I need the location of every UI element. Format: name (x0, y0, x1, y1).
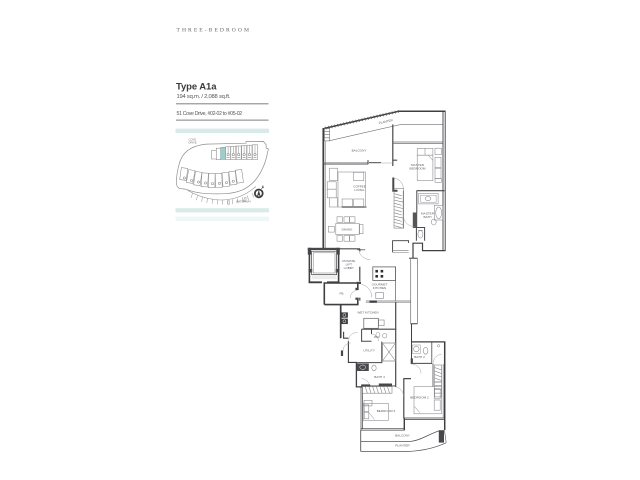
svg-text:PLANTER: PLANTER (395, 443, 410, 447)
svg-text:WET KITCHEN: WET KITCHEN (357, 311, 378, 315)
svg-text:194 sq.m. / 2,088 sq.ft.: 194 sq.m. / 2,088 sq.ft. (177, 94, 231, 100)
svg-text:UTILITY: UTILITY (363, 348, 375, 352)
svg-text:DINING: DINING (342, 227, 353, 231)
svg-text:BATH: BATH (423, 215, 431, 219)
svg-text:LOBBY: LOBBY (344, 266, 354, 270)
svg-text:BEDROOM 3: BEDROOM 3 (377, 409, 396, 413)
svg-text:DRIVE: DRIVE (189, 141, 197, 145)
svg-text:Type A1a: Type A1a (176, 82, 217, 93)
svg-text:BEDROOM 2: BEDROOM 2 (410, 395, 429, 399)
svg-text:WATERWAY: WATERWAY (236, 200, 251, 204)
svg-text:BALCONY: BALCONY (352, 148, 367, 152)
svg-text:BATH 2: BATH 2 (414, 355, 425, 359)
svg-text:KITCHEN: KITCHEN (373, 286, 387, 290)
svg-text:WC: WC (374, 335, 380, 339)
svg-text:LIVING: LIVING (354, 188, 365, 192)
svg-text:BALCONY: BALCONY (395, 433, 410, 437)
svg-text:51 Cove Drive, #02-02 to #05-0: 51 Cove Drive, #02-02 to #05-02 (177, 111, 243, 117)
svg-text:BATH 3: BATH 3 (374, 375, 385, 379)
svg-text:BEDROOM: BEDROOM (410, 167, 426, 171)
svg-text:FB: FB (340, 292, 344, 296)
svg-text:THREE-BEDROOM: THREE-BEDROOM (177, 28, 252, 34)
